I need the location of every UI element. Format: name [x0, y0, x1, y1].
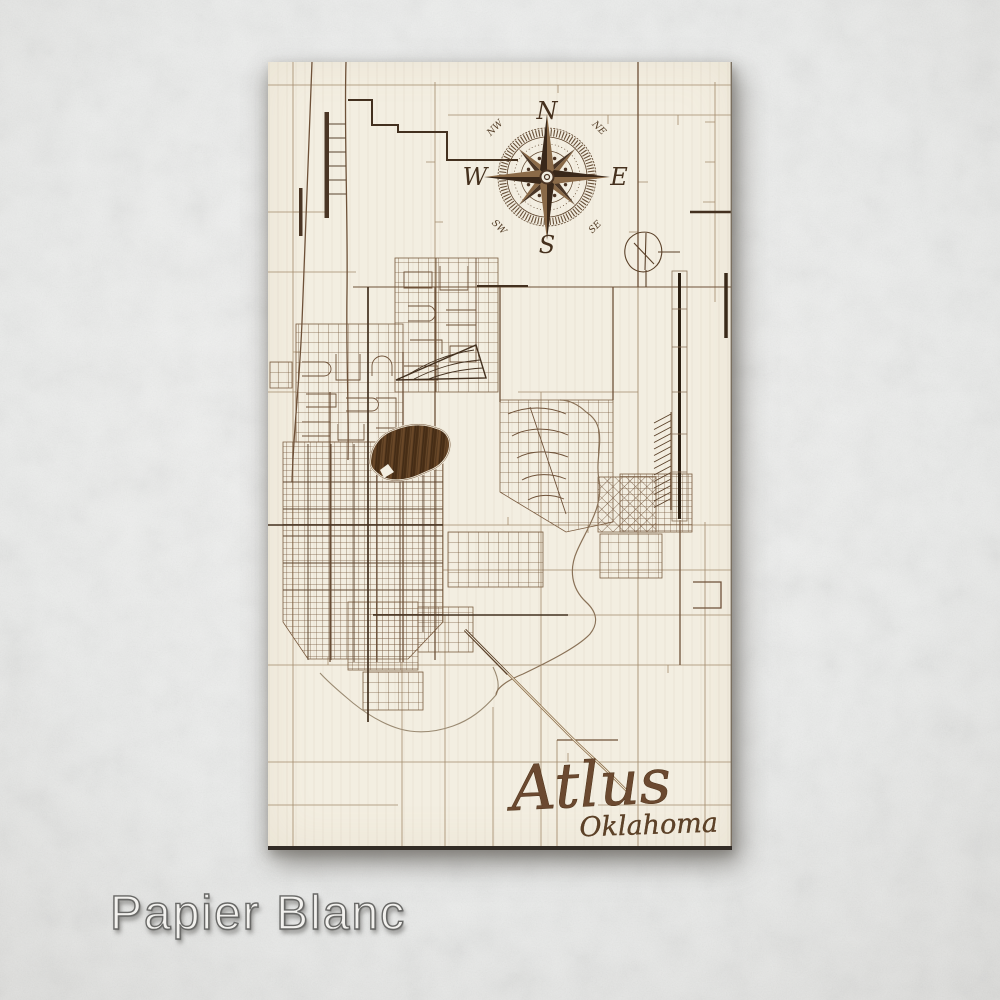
compass-northeast-label: NE — [589, 118, 608, 137]
base-housing-south — [600, 534, 662, 578]
west-stub-district — [270, 362, 292, 388]
railroad-siding — [299, 188, 303, 236]
street-map: N E S W NW NE SW SE Atlus Oklahoma — [268, 62, 732, 846]
compass-southeast-label: SE — [587, 219, 604, 236]
map-board: N E S W NW NE SW SE Atlus Oklahoma — [268, 62, 732, 850]
compass-east-label: E — [609, 163, 628, 191]
product-photo: N E S W NW NE SW SE Atlus Oklahoma Papie… — [0, 0, 1000, 1000]
compass-rose-icon: N E S W NW NE SW SE — [463, 97, 629, 259]
map-subtitle: Oklahoma — [579, 808, 719, 844]
southeast-district — [448, 532, 543, 587]
base-housing-diagonal — [598, 477, 656, 532]
railroad-bar — [325, 112, 330, 218]
finish-label: Papier Blanc — [110, 886, 406, 941]
east-residential — [500, 400, 613, 532]
district-blocks — [270, 258, 692, 710]
south-district-c — [363, 672, 423, 710]
compass-southwest-label: SW — [489, 218, 509, 238]
compass-west-label: W — [463, 163, 490, 191]
compass-north-label: N — [536, 97, 559, 125]
north-residential — [296, 324, 403, 442]
compass-northwest-label: NW — [484, 117, 506, 139]
south-district-b — [418, 607, 473, 652]
compass-south-label: S — [539, 231, 555, 259]
compass-hub — [541, 171, 554, 184]
south-district-a — [348, 602, 418, 670]
